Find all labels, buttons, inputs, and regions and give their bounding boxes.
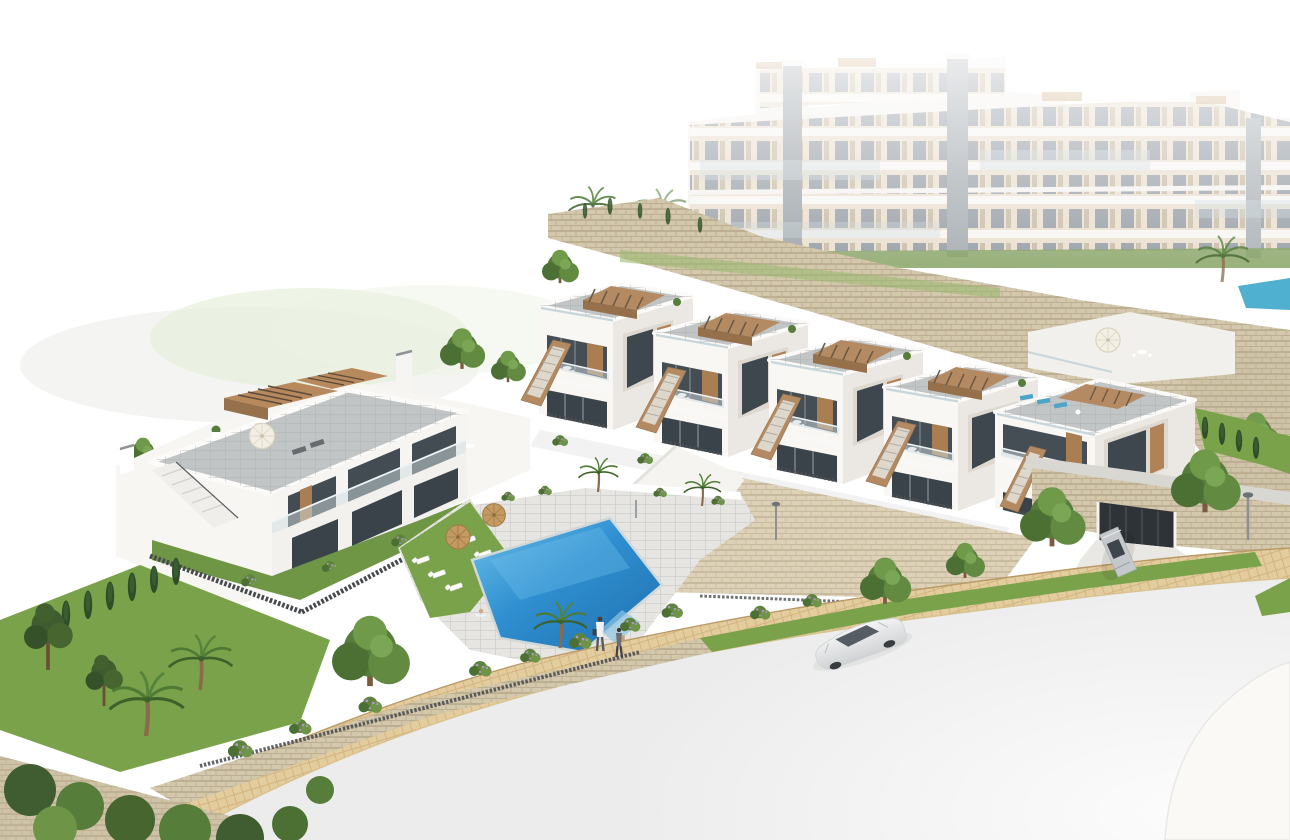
left-chimney-2 (396, 350, 412, 395)
white-parasol-roof (1096, 328, 1120, 352)
straw-umbrella-2 (483, 504, 506, 527)
corner-wood-panel (1150, 423, 1164, 474)
render-canvas (0, 0, 1290, 840)
straw-umbrella-1 (446, 525, 470, 549)
white-parasol-left-roof (249, 423, 274, 448)
